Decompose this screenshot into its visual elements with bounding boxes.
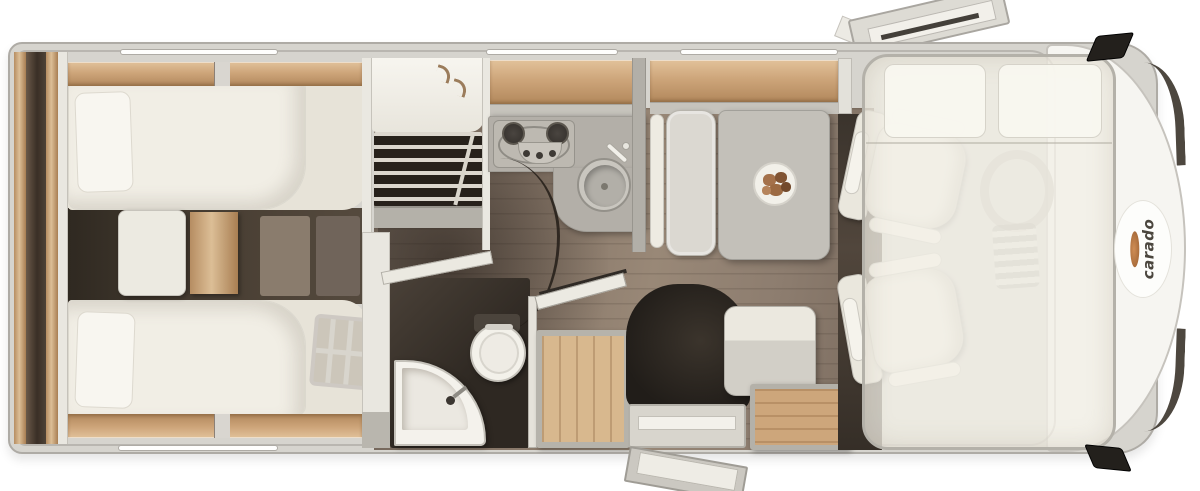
plate-of-food-icon	[753, 162, 797, 206]
locker-divider-top	[214, 62, 230, 86]
toilet-lid	[479, 332, 519, 374]
bench-backrest	[650, 114, 664, 248]
entry-seat	[724, 306, 816, 396]
motorhome-floorplan: carado	[0, 0, 1200, 491]
cab-bed-pillow-left	[884, 64, 986, 138]
entry-step-tread	[638, 416, 736, 430]
dinette-end-wall	[838, 58, 852, 114]
locker-divider-bottom	[214, 414, 230, 438]
wardrobe-left-wall	[362, 58, 372, 250]
faucet-knob	[622, 142, 630, 150]
cab-bed-pillow-right	[998, 64, 1102, 138]
bed-step-wood	[190, 212, 238, 294]
kitchen-locker-lip	[490, 104, 642, 116]
control-knob-icon	[523, 150, 530, 157]
overhead-locker-kitchen	[490, 60, 642, 104]
window	[680, 49, 838, 55]
rear-shelf-wood-left	[14, 52, 26, 444]
wardrobe-interior	[372, 58, 484, 132]
window	[486, 49, 618, 55]
windshield-pillar-icon	[1144, 61, 1186, 166]
window	[120, 49, 278, 55]
carado-logo: carado	[1130, 219, 1156, 280]
galley-partition-wall	[632, 58, 646, 252]
control-knob-icon	[536, 152, 543, 159]
storage-box-1	[260, 216, 310, 296]
toilet-hinge	[485, 324, 513, 330]
sink-drain	[601, 183, 608, 190]
overhead-locker-dinette	[650, 60, 838, 102]
bathroom-wall-base	[362, 412, 390, 448]
carado-logo-badge: carado	[1114, 200, 1172, 298]
logo-swoosh-icon	[1130, 231, 1139, 267]
logo-text: carado	[1141, 219, 1156, 280]
bedside-cabinet	[118, 210, 186, 296]
pillow-top-bed	[74, 91, 133, 193]
dinette-bench	[666, 110, 716, 256]
storage-box-2	[316, 216, 360, 296]
rear-wall-panel	[58, 52, 68, 444]
shower-grate-icon	[536, 330, 630, 448]
window	[118, 445, 278, 451]
pillow-bottom-bed	[74, 311, 135, 409]
entry-storage-box	[750, 384, 850, 450]
windshield-pillar-icon	[1144, 327, 1186, 432]
rear-shelf-recess	[26, 52, 46, 444]
rear-shelf-wood-right	[46, 52, 58, 444]
control-knob-icon	[549, 150, 556, 157]
cab-bed-seam	[866, 142, 1112, 144]
wardrobe-ledge	[374, 206, 482, 228]
